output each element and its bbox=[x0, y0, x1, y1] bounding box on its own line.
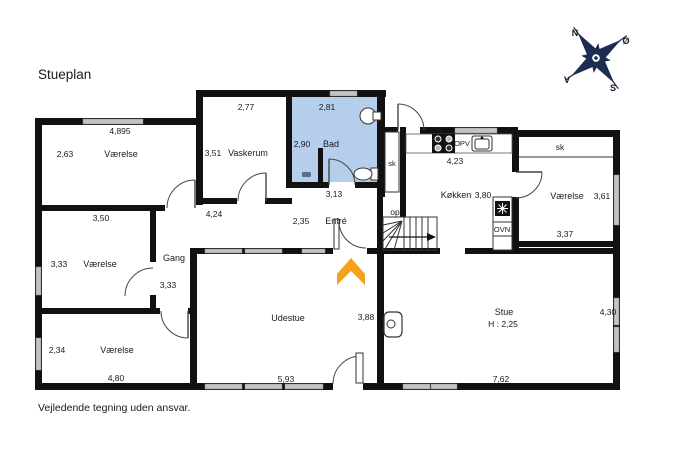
wall bbox=[512, 197, 519, 248]
dim-vaerelse-nw-width: 4,895 bbox=[109, 126, 131, 136]
window bbox=[36, 338, 41, 370]
closet-hall-label: sk bbox=[388, 159, 396, 168]
room-label-gang: Gang bbox=[163, 253, 185, 263]
window bbox=[245, 384, 282, 389]
room-label-koekken: Køkken bbox=[441, 190, 472, 200]
basin-tap bbox=[373, 112, 381, 120]
floor-plan-drawing: Stueplan Vejledende tegning uden ansvar. bbox=[0, 0, 687, 457]
wall bbox=[190, 248, 197, 383]
room-label-vaerelse-nw: Værelse bbox=[104, 149, 138, 159]
door-swing bbox=[161, 311, 188, 338]
dim-udestue-width: 5,93 bbox=[278, 374, 295, 384]
door-swing bbox=[167, 180, 195, 208]
floor-plan-page: Stueplan Vejledende tegning uden ansvar. bbox=[0, 0, 687, 457]
wall bbox=[512, 241, 613, 247]
compass-star-icon bbox=[543, 5, 649, 111]
page-title: Stueplan bbox=[38, 67, 91, 82]
burner-icon bbox=[446, 145, 452, 151]
wall bbox=[35, 205, 165, 211]
room-label-bad: Bad bbox=[323, 139, 339, 149]
window bbox=[205, 384, 242, 389]
window bbox=[36, 267, 41, 295]
microwave-fan-icon bbox=[497, 203, 508, 214]
wall bbox=[377, 90, 385, 197]
wall bbox=[196, 90, 386, 97]
wall bbox=[318, 148, 323, 188]
wall bbox=[377, 197, 383, 254]
room-label-vaerelse-sw: Værelse bbox=[100, 345, 134, 355]
closet-east-label: sk bbox=[556, 142, 565, 152]
window bbox=[614, 327, 619, 352]
door-swing bbox=[125, 268, 153, 296]
floor-drain-mark bbox=[302, 172, 311, 177]
window bbox=[302, 249, 325, 253]
dim-stue-height: 4,30 bbox=[600, 307, 617, 317]
room-label-vaskerum: Vaskerum bbox=[228, 148, 268, 158]
dim-vaerelse-sw-height: 2,34 bbox=[49, 345, 66, 355]
dim-vaskerum-bottom: 4,24 bbox=[206, 209, 223, 219]
stair-direction-arrow-icon bbox=[427, 233, 436, 241]
burner-icon bbox=[435, 145, 441, 151]
window bbox=[614, 175, 619, 225]
oven-label: OVN bbox=[494, 225, 510, 234]
window bbox=[431, 384, 457, 389]
compass-west-label: V bbox=[564, 75, 570, 85]
faucet-icon bbox=[481, 137, 484, 140]
dim-bad-height: 2,90 bbox=[294, 139, 311, 149]
room-label-udestue: Udestue bbox=[271, 313, 305, 323]
wall bbox=[196, 90, 203, 205]
dim-udestue-height: 3,88 bbox=[358, 312, 375, 322]
window bbox=[403, 384, 430, 389]
dishwasher-label: OPV bbox=[454, 139, 470, 148]
disclaimer-text: Vejledende tegning uden ansvar. bbox=[38, 402, 190, 414]
room-label-vaerelse-e: Værelse bbox=[550, 191, 584, 201]
dim-vaerelse-e-height: 3,61 bbox=[594, 191, 611, 201]
dim-stue-ceiling: H : 2,25 bbox=[488, 319, 518, 329]
wood-stove bbox=[384, 312, 402, 337]
dim-stue-width: 7,62 bbox=[493, 374, 510, 384]
stair-winder bbox=[385, 221, 402, 249]
wall bbox=[150, 211, 156, 262]
entrance-arrow-icon bbox=[337, 258, 365, 285]
door-swing bbox=[238, 173, 266, 201]
dim-bad-bottom: 3,13 bbox=[326, 189, 343, 199]
dim-vaerelse-nw-height: 2,63 bbox=[57, 149, 74, 159]
wall bbox=[377, 248, 384, 390]
dim-vaerelse-w-height: 3,33 bbox=[51, 259, 68, 269]
wall bbox=[465, 248, 613, 254]
dim-vaerelse-sw-width: 4,80 bbox=[108, 373, 125, 383]
wall bbox=[196, 198, 237, 204]
window bbox=[455, 128, 497, 133]
window bbox=[205, 249, 242, 253]
wall bbox=[512, 130, 620, 137]
wall bbox=[150, 295, 156, 308]
dim-vaerelse-e-width: 3,37 bbox=[557, 229, 574, 239]
wall bbox=[512, 137, 519, 172]
wall bbox=[355, 182, 383, 188]
door-leaf bbox=[356, 353, 363, 383]
room-label-stue: Stue bbox=[495, 307, 514, 317]
dim-gang-height: 3,33 bbox=[160, 280, 177, 290]
compass-rose: N Ø V S bbox=[543, 5, 649, 111]
window bbox=[245, 249, 282, 253]
room-label-vaerelse-w: Værelse bbox=[83, 259, 117, 269]
wall bbox=[383, 248, 440, 254]
dim-koekken-height: 3,80 bbox=[475, 190, 492, 200]
dim-vaskerum-top: 2,77 bbox=[238, 102, 255, 112]
dim-vaskerum-height: 3,51 bbox=[205, 148, 222, 158]
compass-east-label: Ø bbox=[622, 36, 629, 46]
compass-south-label: S bbox=[610, 83, 616, 93]
stairs bbox=[383, 217, 437, 250]
window bbox=[330, 91, 357, 96]
wall bbox=[286, 97, 292, 188]
room-label-entre: Entré bbox=[325, 216, 347, 226]
dim-vaerelse-w-width: 3,50 bbox=[93, 213, 110, 223]
burner-icon bbox=[435, 136, 441, 142]
dim-bad-top: 2,81 bbox=[319, 102, 336, 112]
toilet-icon bbox=[354, 168, 372, 180]
window bbox=[285, 384, 323, 389]
wall bbox=[363, 383, 620, 390]
door-swing bbox=[398, 104, 424, 130]
stairs-up-label: op bbox=[390, 207, 400, 217]
dim-entre-width: 2,35 bbox=[293, 216, 310, 226]
window bbox=[83, 119, 143, 124]
compass-north-label: N bbox=[572, 28, 579, 38]
wall bbox=[400, 127, 406, 217]
wall bbox=[265, 198, 292, 204]
wall bbox=[35, 308, 160, 314]
dim-koekken-width: 4,23 bbox=[447, 156, 464, 166]
door-swing bbox=[516, 172, 542, 198]
burner-icon bbox=[446, 136, 452, 142]
